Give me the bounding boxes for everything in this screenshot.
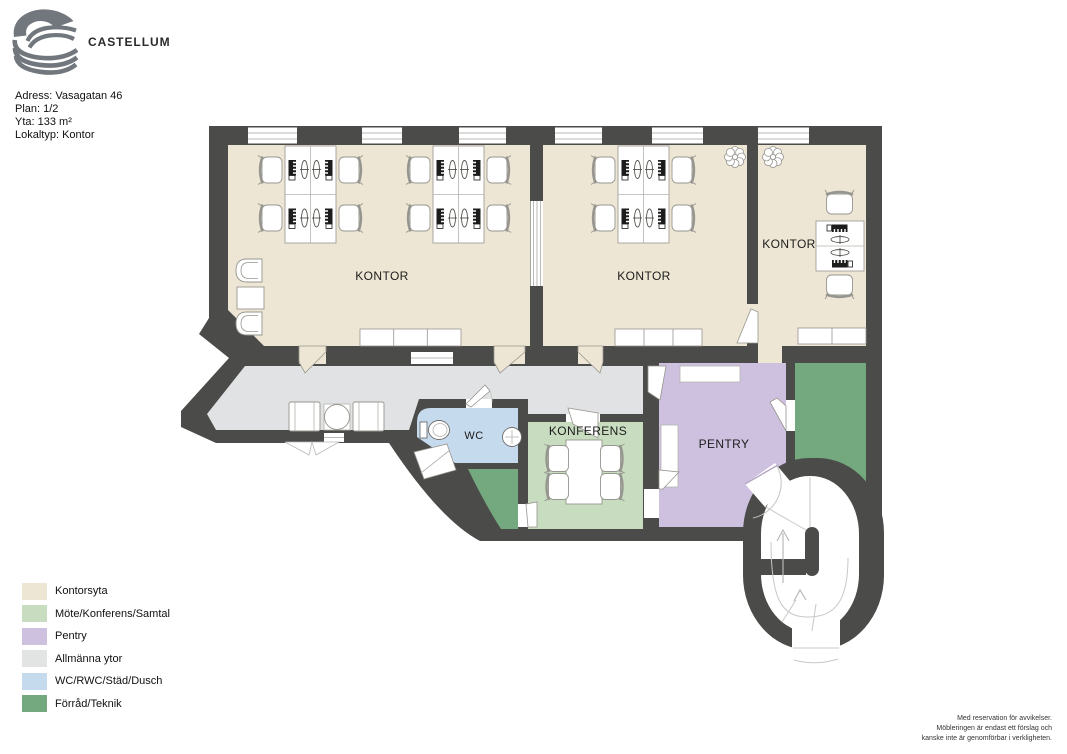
svg-text:WC: WC bbox=[464, 430, 483, 442]
svg-text:KONFERENS: KONFERENS bbox=[549, 424, 627, 438]
svg-text:KONTOR: KONTOR bbox=[617, 269, 671, 283]
svg-text:KONTOR: KONTOR bbox=[762, 237, 816, 251]
svg-text:KONTOR: KONTOR bbox=[355, 269, 409, 283]
svg-text:PENTRY: PENTRY bbox=[699, 437, 750, 451]
